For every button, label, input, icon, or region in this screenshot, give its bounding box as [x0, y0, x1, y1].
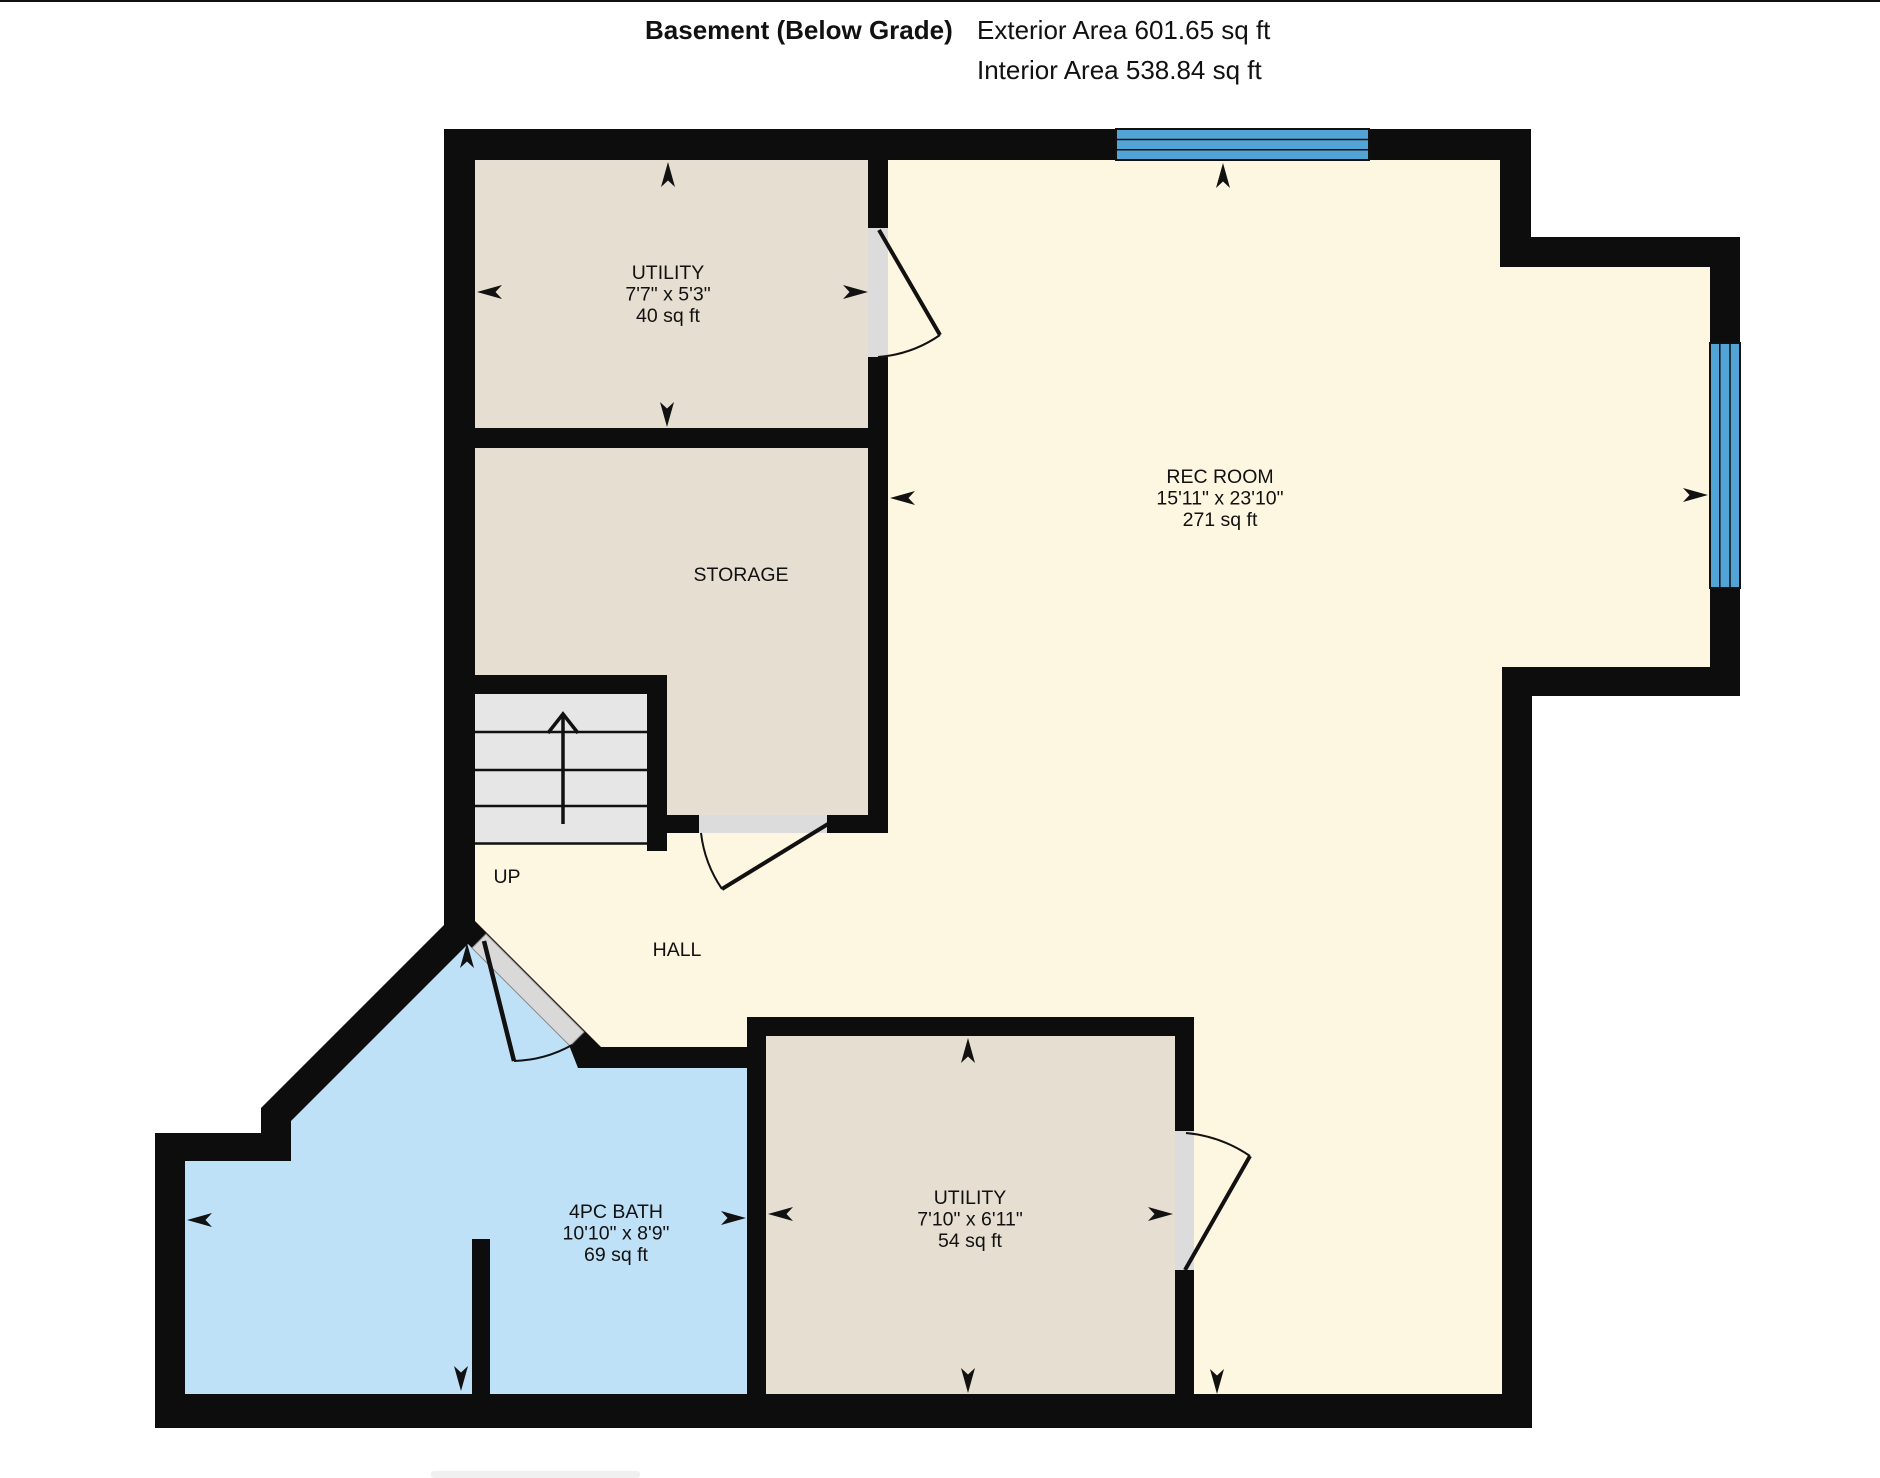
svg-text:271 sq ft: 271 sq ft	[1183, 509, 1258, 531]
svg-text:10'10" x 8'9": 10'10" x 8'9"	[563, 1223, 670, 1245]
svg-text:69 sq ft: 69 sq ft	[584, 1244, 649, 1266]
svg-text:UTILITY: UTILITY	[934, 1187, 1007, 1209]
svg-text:7'7" x 5'3": 7'7" x 5'3"	[625, 284, 710, 306]
svg-text:HALL: HALL	[653, 939, 702, 961]
svg-text:40 sq ft: 40 sq ft	[636, 305, 701, 327]
svg-text:REC ROOM: REC ROOM	[1166, 466, 1273, 488]
svg-text:UP: UP	[493, 866, 520, 888]
svg-text:Exterior Area 601.65 sq ft: Exterior Area 601.65 sq ft	[977, 15, 1271, 45]
svg-text:54 sq ft: 54 sq ft	[938, 1230, 1003, 1252]
svg-text:7'10" x 6'11": 7'10" x 6'11"	[917, 1209, 1023, 1231]
svg-text:Basement (Below Grade): Basement (Below Grade)	[645, 15, 953, 45]
svg-text:Interior Area 538.84 sq ft: Interior Area 538.84 sq ft	[977, 55, 1263, 85]
svg-text:STORAGE: STORAGE	[694, 564, 789, 586]
svg-text:15'11" x 23'10": 15'11" x 23'10"	[1156, 488, 1283, 510]
svg-text:4PC BATH: 4PC BATH	[569, 1201, 663, 1223]
svg-text:UTILITY: UTILITY	[632, 262, 705, 284]
